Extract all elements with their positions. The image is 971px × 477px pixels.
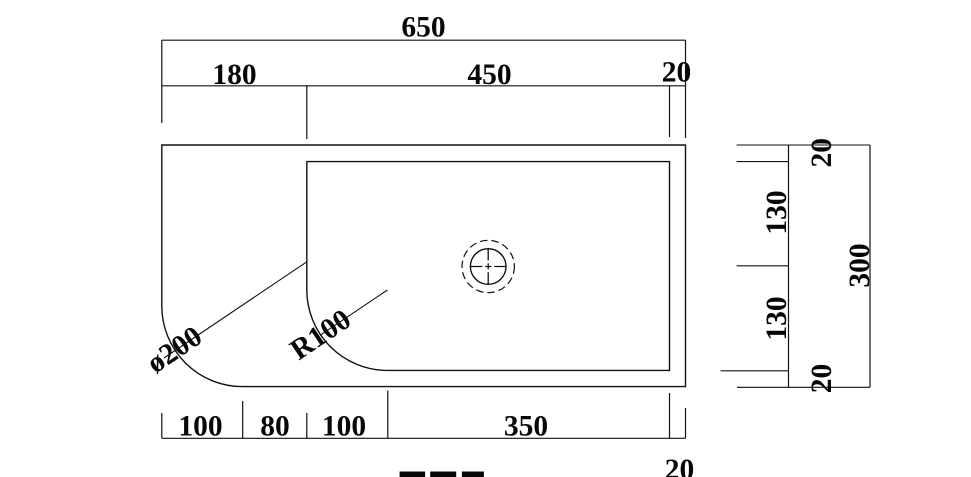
svg-text:300: 300 [844,243,876,287]
svg-text:20: 20 [665,454,695,477]
svg-text:20: 20 [806,138,838,168]
svg-text:100: 100 [322,411,366,443]
svg-text:350: 350 [504,411,548,443]
svg-text:130: 130 [761,296,793,340]
svg-text:180: 180 [212,59,256,91]
svg-text:650: 650 [401,12,445,44]
svg-text:20: 20 [662,57,692,89]
svg-text:80: 80 [260,411,290,443]
svg-text:130: 130 [761,190,793,234]
svg-text:450: 450 [467,59,511,91]
svg-text:20: 20 [806,364,838,394]
svg-text:100: 100 [178,411,222,443]
